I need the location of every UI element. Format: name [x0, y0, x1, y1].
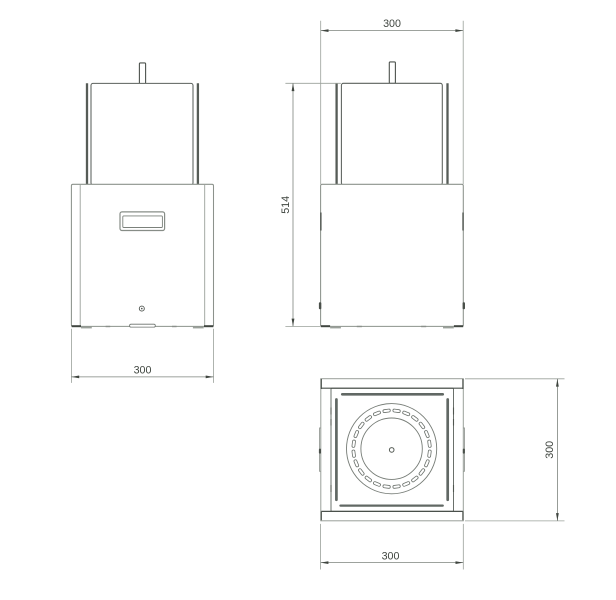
svg-text:300: 300: [383, 18, 401, 30]
svg-text:300: 300: [382, 551, 400, 563]
svg-text:300: 300: [134, 365, 152, 377]
svg-text:514: 514: [280, 196, 292, 214]
svg-text:300: 300: [544, 441, 556, 459]
